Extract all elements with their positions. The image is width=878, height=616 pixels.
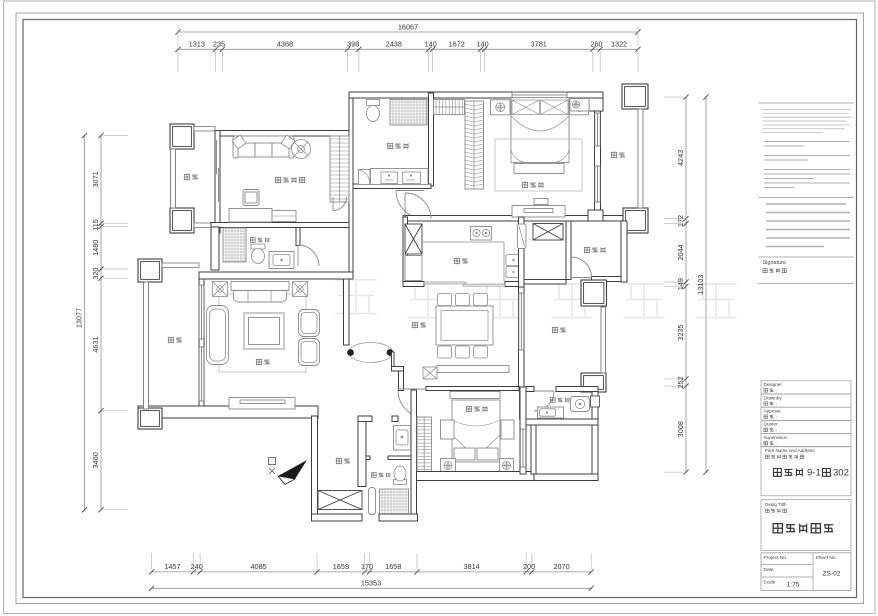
svg-text::: : bbox=[776, 429, 777, 434]
svg-text:1659: 1659 bbox=[333, 562, 349, 571]
svg-text:398: 398 bbox=[347, 40, 359, 49]
svg-text:3460: 3460 bbox=[91, 452, 100, 468]
svg-text:Signature: Signature bbox=[763, 260, 787, 266]
svg-text:13077: 13077 bbox=[75, 308, 84, 328]
svg-text::: : bbox=[776, 389, 777, 394]
svg-text::: : bbox=[776, 403, 777, 408]
svg-text:3235: 3235 bbox=[676, 324, 685, 340]
svg-text:Designer: Designer bbox=[764, 382, 783, 387]
svg-text:Supervision: Supervision bbox=[764, 435, 788, 440]
svg-text:3008: 3008 bbox=[676, 421, 685, 437]
svg-text:3814: 3814 bbox=[463, 562, 479, 571]
svg-text::: : bbox=[799, 458, 800, 463]
svg-text:Date: Date bbox=[764, 567, 774, 573]
svg-text:2044: 2044 bbox=[676, 244, 685, 260]
svg-text:2438: 2438 bbox=[386, 40, 402, 49]
svg-text:Desig Titlh: Desig Titlh bbox=[765, 502, 787, 507]
svg-text:3781: 3781 bbox=[531, 40, 547, 49]
svg-text:1313: 1313 bbox=[189, 40, 205, 49]
svg-text:2070: 2070 bbox=[553, 562, 569, 571]
svg-text:4631: 4631 bbox=[91, 336, 100, 352]
svg-text:172: 172 bbox=[676, 215, 685, 227]
svg-text:13103: 13103 bbox=[696, 275, 705, 295]
svg-text:Quoter: Quoter bbox=[764, 422, 779, 427]
svg-text:Project No.: Project No. bbox=[764, 555, 788, 561]
svg-text:Approve: Approve bbox=[764, 409, 782, 414]
svg-text:ZS-02: ZS-02 bbox=[823, 571, 841, 578]
svg-text:1658: 1658 bbox=[385, 562, 401, 571]
svg-text:260: 260 bbox=[590, 40, 602, 49]
svg-text:252: 252 bbox=[676, 376, 685, 388]
svg-text:Sheet No.: Sheet No. bbox=[816, 555, 837, 561]
svg-text::: : bbox=[789, 512, 790, 517]
svg-text:115: 115 bbox=[91, 219, 100, 231]
svg-text:235: 235 bbox=[213, 40, 225, 49]
svg-text:4243: 4243 bbox=[676, 150, 685, 166]
svg-text:200: 200 bbox=[523, 562, 535, 571]
svg-text:140: 140 bbox=[425, 40, 437, 49]
svg-text:302: 302 bbox=[833, 468, 849, 479]
svg-text:1457: 1457 bbox=[164, 562, 180, 571]
svg-text:1480: 1480 bbox=[91, 240, 100, 256]
svg-text:1322: 1322 bbox=[611, 40, 627, 49]
svg-text:240: 240 bbox=[191, 562, 203, 571]
svg-text:140: 140 bbox=[477, 40, 489, 49]
svg-text:320: 320 bbox=[91, 268, 100, 280]
svg-text::: : bbox=[776, 416, 777, 421]
svg-text:4085: 4085 bbox=[250, 562, 266, 571]
svg-text:Scale: Scale bbox=[764, 579, 776, 585]
svg-text:4368: 4368 bbox=[277, 40, 293, 49]
svg-text:1:75: 1:75 bbox=[787, 582, 800, 589]
svg-text:1672: 1672 bbox=[449, 40, 465, 49]
svg-text:3071: 3071 bbox=[91, 171, 100, 187]
svg-text:9-1: 9-1 bbox=[807, 468, 821, 479]
svg-text:170: 170 bbox=[361, 562, 373, 571]
svg-text:Drawnby: Drawnby bbox=[764, 395, 783, 400]
svg-text:Firm Name and Address: Firm Name and Address bbox=[765, 448, 815, 453]
svg-text:16067: 16067 bbox=[398, 23, 418, 32]
svg-text:15353: 15353 bbox=[361, 578, 381, 587]
svg-text:149: 149 bbox=[676, 278, 685, 290]
